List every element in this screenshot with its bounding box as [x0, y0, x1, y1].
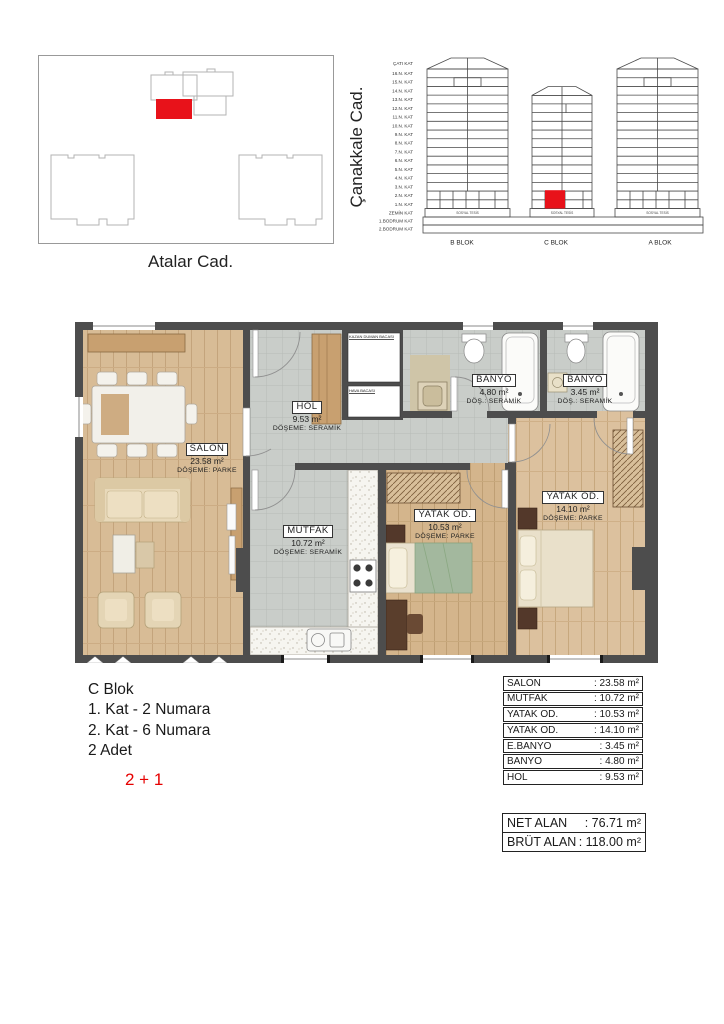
sideboard: [88, 334, 185, 352]
svg-text:7.N. KAT: 7.N. KAT: [395, 150, 413, 155]
table-row: BRÜT ALAN : 118.00 m²: [502, 832, 646, 852]
svg-text:8.N. KAT: 8.N. KAT: [395, 141, 413, 146]
totals-table: NET ALAN : 76.71 m² BRÜT ALAN : 118.00 m…: [502, 813, 646, 851]
room-area: 10.53 m²: [400, 523, 490, 533]
ground-floor-labels: SOSYAL TESİS SOSYAL TESİS SOSYAL TESİS: [456, 210, 668, 215]
room-floor: DÖŞ.: SERAMİK: [454, 398, 534, 406]
side-table: [113, 535, 135, 573]
room-name: YATAK OD.: [542, 491, 603, 504]
room-area: 3.45 m²: [545, 388, 625, 398]
room-name: BANYO: [472, 374, 516, 387]
nightstand-2b: [518, 608, 537, 629]
table-row: NET ALAN : 76.71 m²: [502, 813, 646, 833]
washing-machine: [418, 382, 447, 410]
svg-text:14.N. KAT: 14.N. KAT: [392, 88, 413, 93]
highlighted-unit-elevation-marker: [545, 190, 565, 208]
table-row: SALON : 23.58 m²: [503, 676, 643, 691]
row-label: BRÜT ALAN: [507, 835, 576, 849]
building-elevation: ÇATI KAT 16.N. KAT 15.N. KAT 14.N. KAT 1…: [340, 40, 708, 255]
label-yatak-1: YATAK OD. 10.53 m² DÖŞEME: PARKE: [400, 504, 490, 541]
row-value: : 76.71 m²: [585, 816, 641, 830]
row-value: : 23.58 m²: [594, 678, 639, 689]
label-e-banyo: BANYO 3.45 m² DÖŞ.: SERAMİK: [545, 369, 625, 406]
row-label: HOL: [507, 772, 528, 783]
room-name: HOL: [292, 401, 321, 414]
row-value: : 10.72 m²: [594, 693, 639, 704]
svg-text:C BLOK: C BLOK: [544, 240, 569, 247]
room-area: 10.72 m²: [263, 539, 353, 549]
apartment-type: 2 + 1: [125, 770, 163, 790]
svg-text:6.N. KAT: 6.N. KAT: [395, 158, 413, 163]
svg-text:1.BODRUM KAT: 1.BODRUM KAT: [379, 219, 413, 224]
svg-text:12.N. KAT: 12.N. KAT: [392, 106, 413, 111]
row-value: : 4.80 m²: [600, 756, 639, 767]
svg-text:SOSYAL TESİS: SOSYAL TESİS: [551, 210, 573, 215]
table-row: YATAK OD. : 10.53 m²: [503, 707, 643, 722]
label-hava-bacasi: HAVA BACASI: [349, 389, 375, 394]
svg-text:SOSYAL TESİS: SOSYAL TESİS: [456, 210, 478, 215]
label-salon: SALON 23.58 m² DÖŞEME: PARKE: [162, 438, 252, 475]
row-label: SALON: [507, 678, 541, 689]
row-value: : 9.53 m²: [600, 772, 639, 783]
room-name: SALON: [186, 443, 229, 456]
room-area: 9.53 m²: [262, 415, 352, 425]
site-plan-drawing: [39, 56, 333, 243]
row-label: YATAK OD.: [507, 725, 558, 736]
row-label: YATAK OD.: [507, 709, 558, 720]
highlighted-unit-marker: [156, 99, 192, 119]
site-plan: [38, 55, 334, 244]
svg-text:B BLOK: B BLOK: [450, 240, 474, 247]
bed-double: [518, 530, 593, 607]
wardrobe-1: [387, 473, 460, 503]
row-value: : 14.10 m²: [594, 725, 639, 736]
room-area-table: SALON : 23.58 m² MUTFAK : 10.72 m² YATAK…: [503, 676, 643, 786]
svg-text:1.N. KAT: 1.N. KAT: [395, 202, 413, 207]
elevation-floor-labels: ÇATI KAT 16.N. KAT 15.N. KAT 14.N. KAT 1…: [379, 61, 413, 232]
svg-text:11.N. KAT: 11.N. KAT: [392, 115, 413, 120]
row-label: MUTFAK: [507, 693, 548, 704]
svg-text:9.N. KAT: 9.N. KAT: [395, 132, 413, 137]
svg-text:13.N. KAT: 13.N. KAT: [392, 97, 413, 102]
svg-text:2.BODRUM KAT: 2.BODRUM KAT: [379, 227, 413, 232]
room-area: 4.80 m²: [454, 388, 534, 398]
room-area: 14.10 m²: [528, 505, 618, 515]
svg-text:ÇATI KAT: ÇATI KAT: [393, 61, 413, 66]
room-area: 23.58 m²: [162, 457, 252, 467]
label-banyo: BANYO 4.80 m² DÖŞ.: SERAMİK: [454, 369, 534, 406]
floor-plan-page: Atalar Cad. Çanakkale Cad. ÇATI KAT 16.N…: [0, 0, 724, 1024]
bed-single: [386, 543, 472, 593]
room-floor: DÖŞ.: SERAMİK: [545, 398, 625, 406]
svg-text:10.N. KAT: 10.N. KAT: [392, 123, 413, 128]
room-name: BANYO: [563, 374, 607, 387]
info-count: 2 Adet: [88, 741, 210, 761]
unit-info: C Blok 1. Kat - 2 Numara 2. Kat - 6 Numa…: [88, 680, 210, 761]
label-hol: HOL 9.53 m² DÖŞEME: SERAMİK: [262, 396, 352, 433]
row-label: NET ALAN: [507, 816, 567, 830]
room-floor: DÖŞEME: PARKE: [400, 533, 490, 541]
desk-chair: [407, 614, 423, 634]
row-label: BANYO: [507, 756, 542, 767]
stove: [350, 560, 376, 592]
room-name: YATAK OD.: [414, 509, 475, 522]
table-row: YATAK OD. : 14.10 m²: [503, 723, 643, 738]
info-block-name: C Blok: [88, 680, 210, 700]
svg-text:SOSYAL TESİS: SOSYAL TESİS: [646, 210, 668, 215]
table-row: HOL : 9.53 m²: [503, 770, 643, 785]
coffee-table: [136, 542, 154, 568]
site-buildings: [51, 69, 322, 225]
row-value: : 3.45 m²: [600, 741, 639, 752]
label-kazan-bacasi: KAZAN DUMAN BACASI: [349, 335, 394, 340]
svg-text:2.N. KAT: 2.N. KAT: [395, 193, 413, 198]
svg-text:A BLOK: A BLOK: [648, 240, 672, 247]
table-row: BANYO : 4.80 m²: [503, 754, 643, 769]
svg-text:4.N. KAT: 4.N. KAT: [395, 176, 413, 181]
info-floor-2: 2. Kat - 6 Numara: [88, 721, 210, 741]
label-yatak-2: YATAK OD. 14.10 m² DÖŞEME: PARKE: [528, 486, 618, 523]
desk: [386, 600, 407, 650]
svg-text:15.N. KAT: 15.N. KAT: [392, 80, 413, 85]
label-mutfak: MUTFAK 10.72 m² DÖŞEME: SERAMİK: [263, 520, 353, 557]
room-floor: DÖŞEME: PARKE: [528, 515, 618, 523]
info-floor-1: 1. Kat - 2 Numara: [88, 700, 210, 720]
sofa: [95, 478, 190, 522]
block-labels: B BLOK C BLOK A BLOK: [450, 240, 672, 247]
svg-text:3.N. KAT: 3.N. KAT: [395, 184, 413, 189]
street-label-atalar: Atalar Cad.: [148, 252, 233, 272]
table-row: MUTFAK : 10.72 m²: [503, 692, 643, 707]
row-value: : 118.00 m²: [579, 835, 641, 849]
svg-text:16.N. KAT: 16.N. KAT: [392, 71, 413, 76]
kitchen-sink: [307, 629, 351, 651]
row-value: : 10.53 m²: [594, 709, 639, 720]
shafts: [348, 333, 400, 417]
svg-text:5.N. KAT: 5.N. KAT: [395, 167, 413, 172]
room-floor: DÖŞEME: PARKE: [162, 467, 252, 475]
room-floor: DÖŞEME: SERAMİK: [262, 425, 352, 433]
row-label: E.BANYO: [507, 741, 551, 752]
svg-text:ZEMİN KAT: ZEMİN KAT: [389, 209, 413, 215]
room-floor: DÖŞEME: SERAMİK: [263, 549, 353, 557]
room-name: MUTFAK: [283, 525, 333, 538]
table-row: E.BANYO : 3.45 m²: [503, 739, 643, 754]
